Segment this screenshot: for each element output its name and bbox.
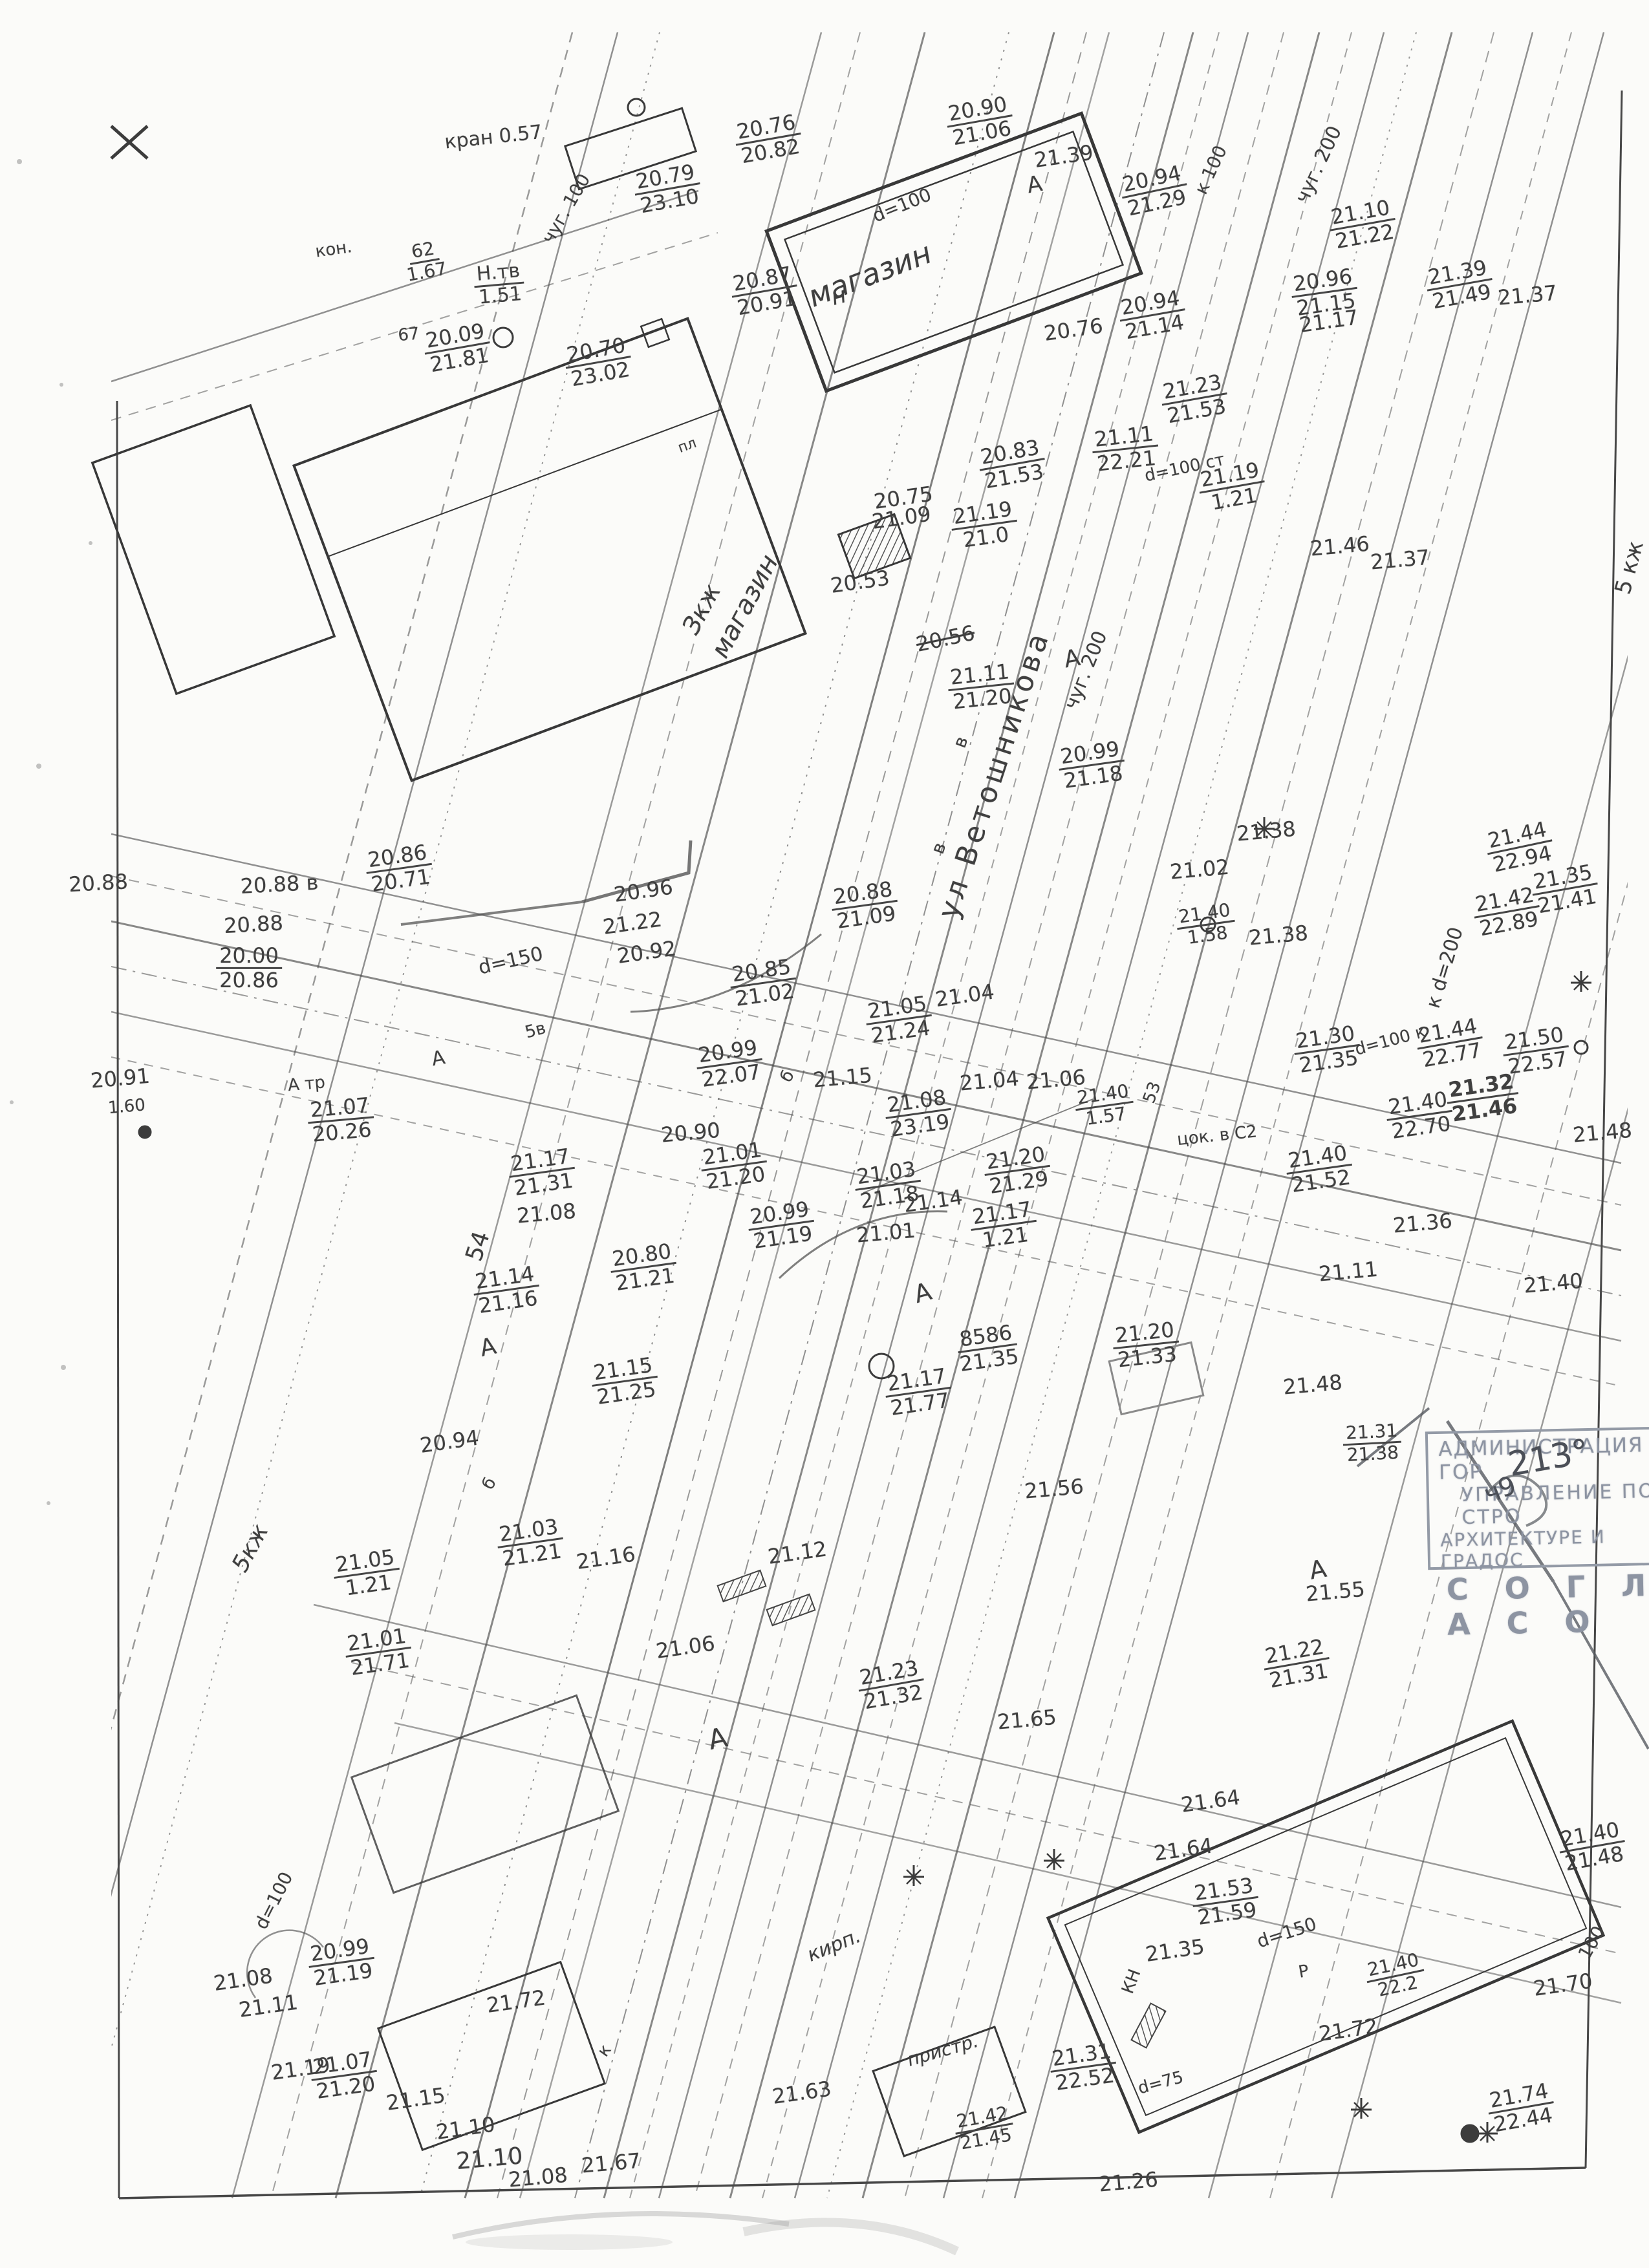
elevation-fraction-label: 20.9021.06 — [943, 93, 1016, 149]
elevation-label: 21.15 — [385, 2084, 446, 2113]
elevation-fraction-label: 20.8620.71 — [363, 841, 435, 895]
elevation-label: А — [478, 1334, 499, 1361]
elevation-label: б — [480, 1475, 500, 1492]
elevation-label: 21.26 — [1098, 2169, 1159, 2195]
elevation-label: А — [911, 1279, 934, 1307]
elevation-fraction-label: 20.0020.86 — [216, 945, 282, 990]
elevation-fraction-label: 20.9421.29 — [1117, 162, 1191, 220]
elevation-fraction-label: 20.9921.19 — [746, 1198, 817, 1252]
elevation-fraction-label: 21.1721.77 — [883, 1365, 954, 1419]
elevation-label: 5в — [523, 1020, 548, 1042]
handwritten-note: 213° — [1506, 1435, 1592, 1482]
elevation-label: 21.06 — [654, 1632, 716, 1662]
elevation-label: 20.56 — [914, 623, 976, 656]
elevation-label: 21.16 — [575, 1543, 636, 1572]
elevation-fraction-label: 20.7620.82 — [732, 111, 804, 167]
elevation-label: 20.88 — [223, 912, 283, 936]
building-label: пл — [676, 436, 698, 456]
elevation-label: цок. в С2 — [1176, 1123, 1258, 1148]
elevation-fraction-label: 20.0921.81 — [421, 320, 493, 376]
elevation-fraction-label: 21.0823.19 — [883, 1086, 954, 1140]
elevation-fraction-label: 21.3921.49 — [1423, 257, 1496, 313]
map-labels-layer: ул ВетошниковамагазиннЗкжмагазин5кж5 кжк… — [0, 0, 1649, 2268]
elevation-label: кон. — [314, 239, 353, 261]
elevation-fraction-label: 21.4221.45 — [952, 2104, 1017, 2154]
elevation-fraction-label: 21.051.21 — [331, 1546, 402, 1600]
elevation-fraction-label: 21.4021.48 — [1556, 1819, 1628, 1875]
elevation-label: d=100 — [252, 1869, 296, 1932]
elevation-fraction-label: 21.0521.24 — [863, 992, 934, 1047]
elevation-label: 21.38 — [1248, 923, 1309, 948]
elevation-label: чуг. 100 — [539, 171, 594, 246]
elevation-label: к d=200 — [1423, 925, 1467, 1011]
elevation-fraction-label: 21.3122.52 — [1048, 2040, 1119, 2094]
elevation-fraction-label: Н.тв1.51 — [473, 261, 526, 308]
elevation-fraction-label: 21.0321.21 — [495, 1515, 566, 1570]
building-label: 5 кж — [1611, 539, 1647, 597]
elevation-fraction-label: 21.2221.31 — [1260, 1636, 1333, 1692]
elevation-label: 20.91 — [90, 1065, 151, 1091]
elevation-fraction-label: 21.4422.77 — [1414, 1015, 1486, 1071]
elevation-fraction-label: 20.9921.19 — [306, 1935, 377, 1989]
elevation-fraction-label: 20.7923.10 — [631, 161, 704, 217]
building-label: магазин — [804, 237, 935, 312]
elevation-label: 21.70 — [1532, 1970, 1593, 1999]
elevation-label: 100 — [1575, 1923, 1608, 1963]
elevation-label: КН — [1119, 1967, 1144, 1996]
elevation-label: 20.88 в — [240, 872, 319, 897]
elevation-fraction-label: 20.9922.07 — [694, 1036, 765, 1091]
elevation-label: А — [1026, 173, 1044, 197]
elevation-fraction-label: 21.7422.44 — [1485, 2080, 1557, 2136]
elevation-fraction-label: 21.2021.33 — [1111, 1319, 1181, 1371]
elevation-label: А тр — [287, 1074, 326, 1094]
elevation-fraction-label: 20.8021.21 — [608, 1240, 679, 1294]
elevation-label: 21.22 — [601, 908, 663, 937]
elevation-fraction-label: 21.1121.20 — [946, 661, 1016, 712]
elevation-fraction-label: 20.7023.02 — [562, 334, 634, 390]
elevation-label: 53 — [1141, 1080, 1164, 1106]
elevation-fraction-label: 21.2321.32 — [855, 1657, 927, 1713]
elevation-label: 21.04 — [934, 981, 995, 1010]
elevation-label: 21.48 — [1282, 1372, 1343, 1398]
elevation-label: 21.37 — [1370, 547, 1430, 573]
elevation-label: А — [1062, 647, 1083, 672]
elevation-label: 21.72 — [1317, 2015, 1379, 2044]
building-label: кирп. — [804, 1927, 863, 1966]
elevation-label: 21.17 — [1298, 306, 1359, 336]
elevation-label: 20.90 — [660, 1120, 721, 1146]
elevation-label: 21.67 — [581, 2150, 641, 2176]
elevation-label: чуг. 200 — [1293, 123, 1346, 207]
building-label: 5кж — [229, 1521, 274, 1576]
survey-map-scan: АДМИНИСТРАЦИЯ ГОР УПРАВЛЕНИЕ ПО СТРО АРХ… — [0, 0, 1649, 2268]
elevation-fraction-label: 21.4022.2 — [1363, 1950, 1428, 2001]
elevation-fraction-label: 21.3221.46 — [1444, 1070, 1522, 1125]
elevation-label: 20.92 — [616, 937, 677, 967]
elevation-label: d=100 — [870, 186, 934, 226]
elevation-label: в — [929, 840, 949, 856]
elevation-fraction-label: 20.8521.02 — [727, 956, 799, 1010]
elevation-label: к 100 — [1192, 143, 1230, 197]
elevation-fraction-label: 21.1921.0 — [949, 498, 1020, 552]
elevation-label: 21.39 — [1033, 142, 1094, 171]
elevation-fraction-label: 20.8321.53 — [976, 436, 1048, 493]
elevation-fraction-label: 21.3121.38 — [1342, 1422, 1402, 1465]
elevation-label: 21.02 — [1169, 857, 1230, 883]
elevation-label: 21.15 — [812, 1065, 873, 1091]
elevation-label: в — [951, 734, 971, 750]
elevation-fraction-label: 21.401.57 — [1073, 1082, 1136, 1129]
elevation-label: 21.63 — [771, 2078, 832, 2107]
elevation-fraction-label: 21.0720.26 — [306, 1095, 375, 1146]
elevation-label: 21.35 — [1144, 1936, 1205, 1965]
elevation-label: d=150 — [1255, 1915, 1319, 1951]
elevation-label: 21.08 — [508, 2165, 568, 2190]
elevation-label: 21.10 — [435, 2113, 496, 2143]
elevation-label: d=150 — [477, 945, 545, 979]
elevation-fraction-label: 21.1521.25 — [589, 1354, 660, 1408]
elevation-label: 21.08 — [212, 1965, 274, 1994]
elevation-fraction-label: 21.1721.31 — [506, 1145, 577, 1199]
elevation-fraction-label: 21.1021.22 — [1326, 197, 1399, 253]
elevation-fraction-label: 21.191.21 — [1196, 459, 1268, 515]
elevation-fraction-label: 20.9921.18 — [1056, 738, 1127, 792]
elevation-label: 21.14 — [902, 1186, 964, 1215]
elevation-label: А — [706, 1724, 729, 1755]
elevation-label: 54 — [462, 1229, 494, 1265]
elevation-fraction-label: 21.2321.53 — [1158, 371, 1231, 427]
elevation-label: Р — [1297, 1963, 1310, 1982]
elevation-fraction-label: 21.0721.20 — [308, 2048, 380, 2102]
elevation-fraction-label: 21.5321.59 — [1190, 1874, 1261, 1929]
elevation-label: 21.64 — [1180, 1786, 1241, 1815]
elevation-label: 20.53 — [829, 567, 890, 596]
elevation-fraction-label: 20.8821.09 — [829, 878, 900, 932]
elevation-label: d=75 — [1136, 2069, 1185, 2097]
elevation-label: кран 0.57 — [444, 123, 543, 153]
elevation-label: 21.72 — [485, 1987, 546, 2016]
elevation-fraction-label: 20.9421.14 — [1116, 287, 1189, 343]
elevation-label: 20.94 — [418, 1427, 480, 1456]
elevation-fraction-label: 621.67 — [402, 238, 448, 284]
elevation-label: 21.04 — [959, 1068, 1020, 1094]
elevation-label: 21.37 — [1497, 283, 1558, 308]
elevation-fraction-label: 21.4021.52 — [1284, 1142, 1355, 1196]
elevation-label: 20.76 — [1042, 315, 1104, 344]
elevation-label: 21.12 — [766, 1538, 828, 1567]
elevation-label: А — [1308, 1556, 1328, 1584]
elevation-label: 21.08 — [516, 1201, 577, 1226]
elevation-fraction-label: 21.0121.20 — [698, 1139, 770, 1193]
elevation-fraction-label: 21.1421.16 — [471, 1263, 542, 1317]
elevation-fraction-label: 21.4222.89 — [1471, 884, 1543, 940]
elevation-fraction-label: 21.2021.29 — [982, 1143, 1053, 1197]
elevation-label: 20.96 — [612, 876, 674, 905]
elevation-label: 1.60 — [107, 1097, 146, 1117]
elevation-label: 21.36 — [1392, 1210, 1453, 1236]
elevation-label: 20.88 — [68, 871, 128, 895]
elevation-label: 21.65 — [997, 1707, 1057, 1733]
elevation-label: 21.48 — [1572, 1120, 1633, 1146]
elevation-label: 21.46 — [1309, 533, 1370, 559]
elevation-fraction-label: 21.3021.35 — [1291, 1022, 1363, 1076]
building-label: пристр. — [905, 2032, 980, 2070]
elevation-fraction-label: 20.8720.91 — [728, 263, 801, 319]
elevation-label: А — [430, 1048, 447, 1070]
elevation-label: 21.56 — [1024, 1476, 1084, 1502]
elevation-label: 21.64 — [1152, 1835, 1214, 1864]
elevation-fraction-label: 21.171.21 — [968, 1198, 1039, 1252]
elevation-fraction-label: 858621.35 — [955, 1321, 1020, 1375]
elevation-label: б — [778, 1067, 798, 1085]
elevation-label: 21.09 — [870, 503, 932, 532]
elevation-label: 21.01 — [856, 1220, 916, 1246]
elevation-label: 21.11 — [237, 1991, 299, 2020]
elevation-label: 21.40 — [1523, 1270, 1584, 1296]
elevation-label: 21.11 — [1318, 1259, 1379, 1285]
elevation-label: 21.38 — [1236, 818, 1297, 844]
elevation-fraction-label: 21.401.58 — [1174, 901, 1238, 948]
elevation-fraction-label: 21.4022.70 — [1384, 1088, 1455, 1142]
elevation-fraction-label: 21.0121.71 — [343, 1625, 414, 1679]
elevation-label: 67 — [397, 325, 420, 344]
elevation-label: к — [595, 2042, 615, 2060]
